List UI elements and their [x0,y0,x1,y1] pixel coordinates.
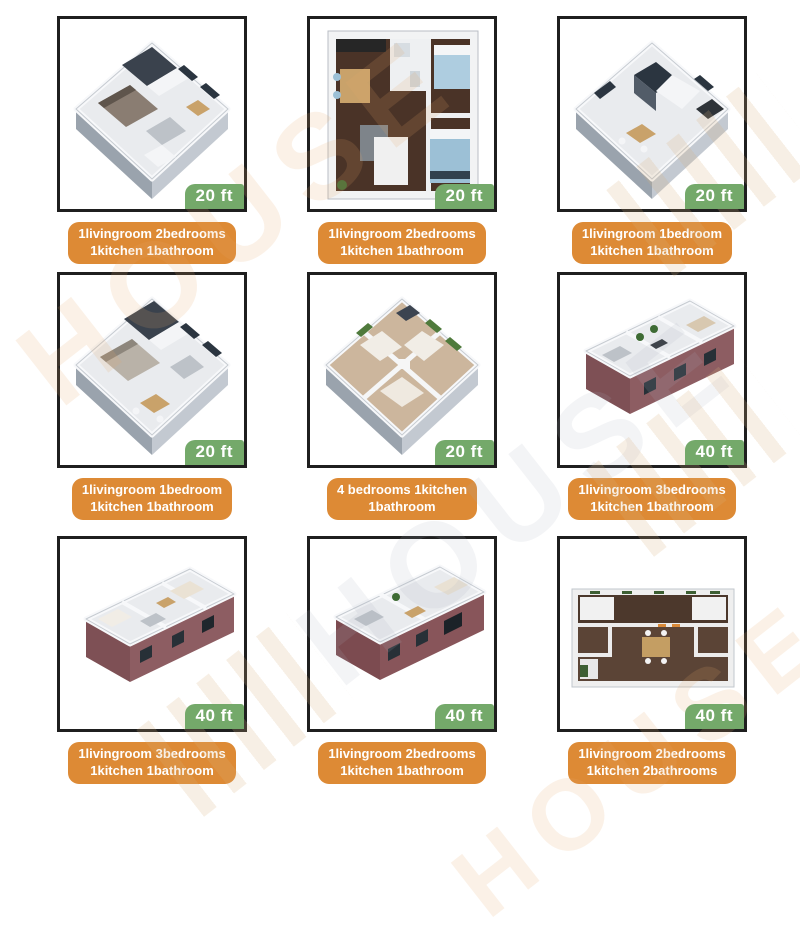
caption-line-1: 1livingroom 1bedroom [82,482,222,497]
plan-card[interactable]: 20 ft 1livingroom 1bedroom 1kitchen 1bat… [57,272,247,520]
caption-label: 1livingroom 3bedrooms 1kitchen 1bathroom [57,742,247,784]
size-badge: 40 ft [685,704,744,729]
plan-card[interactable]: 20 ft 1livingroom 2bedrooms 1kitchen 1ba… [307,16,497,264]
size-badge: 20 ft [685,184,744,209]
caption-line-2: 1kitchen 1bathroom [340,243,464,258]
top-down-floor-plan [560,539,744,729]
caption-label: 1livingroom 1bedroom 1kitchen 1bathroom [557,222,747,264]
plan-card[interactable]: 40 ft 1livingroom 2bedrooms 1kitchen 1ba… [307,536,497,784]
size-badge: 40 ft [435,704,494,729]
floor-plan-image[interactable]: 40 ft [557,272,747,468]
caption-line-2: 1kitchen 1bathroom [340,763,464,778]
caption-line-2: 1kitchen 1bathroom [590,243,714,258]
isometric-floor-plan [560,275,744,465]
plan-card[interactable]: 20 ft 1livingroom 2bedrooms 1kitchen 1ba… [57,16,247,264]
caption-line-1: 1livingroom 2bedrooms [328,746,475,761]
caption-label: 1livingroom 2bedrooms 1kitchen 2bathroom… [557,742,747,784]
size-badge: 20 ft [435,440,494,465]
floor-plan-image[interactable]: 20 ft [57,16,247,212]
isometric-floor-plan [310,275,494,465]
floor-plan-image[interactable]: 20 ft [57,272,247,468]
plan-card[interactable]: 40 ft 1livingroom 2bedrooms 1kitchen 2ba… [557,536,747,784]
size-badge: 20 ft [435,184,494,209]
size-badge: 20 ft [185,440,244,465]
plan-card[interactable]: 20 ft 4 bedrooms 1kitchen 1bathroom [307,272,497,520]
caption-line-2: 1bathroom [368,499,435,514]
caption-line-1: 1livingroom 3bedrooms [78,746,225,761]
caption-line-1: 1livingroom 3bedrooms [578,482,725,497]
caption-label: 1livingroom 2bedrooms 1kitchen 1bathroom [57,222,247,264]
caption-line-2: 1kitchen 1bathroom [90,763,214,778]
caption-label: 1livingroom 1bedroom 1kitchen 1bathroom [57,478,247,520]
floor-plan-image[interactable]: 20 ft [307,272,497,468]
caption-line-2: 1kitchen 1bathroom [590,499,714,514]
caption-label: 4 bedrooms 1kitchen 1bathroom [307,478,497,520]
plan-card[interactable]: 40 ft 1livingroom 3bedrooms 1kitchen 1ba… [557,272,747,520]
isometric-floor-plan [60,19,244,209]
plan-card[interactable]: 40 ft 1livingroom 3bedrooms 1kitchen 1ba… [57,536,247,784]
caption-label: 1livingroom 3bedrooms 1kitchen 1bathroom [557,478,747,520]
caption-line-1: 1livingroom 2bedrooms [78,226,225,241]
caption-label: 1livingroom 2bedrooms 1kitchen 1bathroom [307,742,497,784]
caption-line-1: 1livingroom 2bedrooms [328,226,475,241]
caption-line-1: 1livingroom 1bedroom [582,226,722,241]
caption-line-1: 1livingroom 2bedrooms [578,746,725,761]
floor-plan-image[interactable]: 40 ft [557,536,747,732]
caption-label: 1livingroom 2bedrooms 1kitchen 1bathroom [307,222,497,264]
caption-line-2: 1kitchen 1bathroom [90,243,214,258]
caption-line-2: 1kitchen 1bathroom [90,499,214,514]
size-badge: 20 ft [185,184,244,209]
top-down-floor-plan [310,19,494,209]
caption-line-1: 4 bedrooms 1kitchen [337,482,467,497]
plan-card[interactable]: 20 ft 1livingroom 1bedroom 1kitchen 1bat… [557,16,747,264]
isometric-floor-plan [60,275,244,465]
isometric-floor-plan [560,19,744,209]
floor-plan-image[interactable]: 20 ft [557,16,747,212]
floor-plan-image[interactable]: 20 ft [307,16,497,212]
caption-line-2: 1kitchen 2bathrooms [587,763,718,778]
isometric-floor-plan [60,539,244,729]
isometric-floor-plan [310,539,494,729]
size-badge: 40 ft [185,704,244,729]
floor-plan-image[interactable]: 40 ft [307,536,497,732]
size-badge: 40 ft [685,440,744,465]
floor-plan-image[interactable]: 40 ft [57,536,247,732]
